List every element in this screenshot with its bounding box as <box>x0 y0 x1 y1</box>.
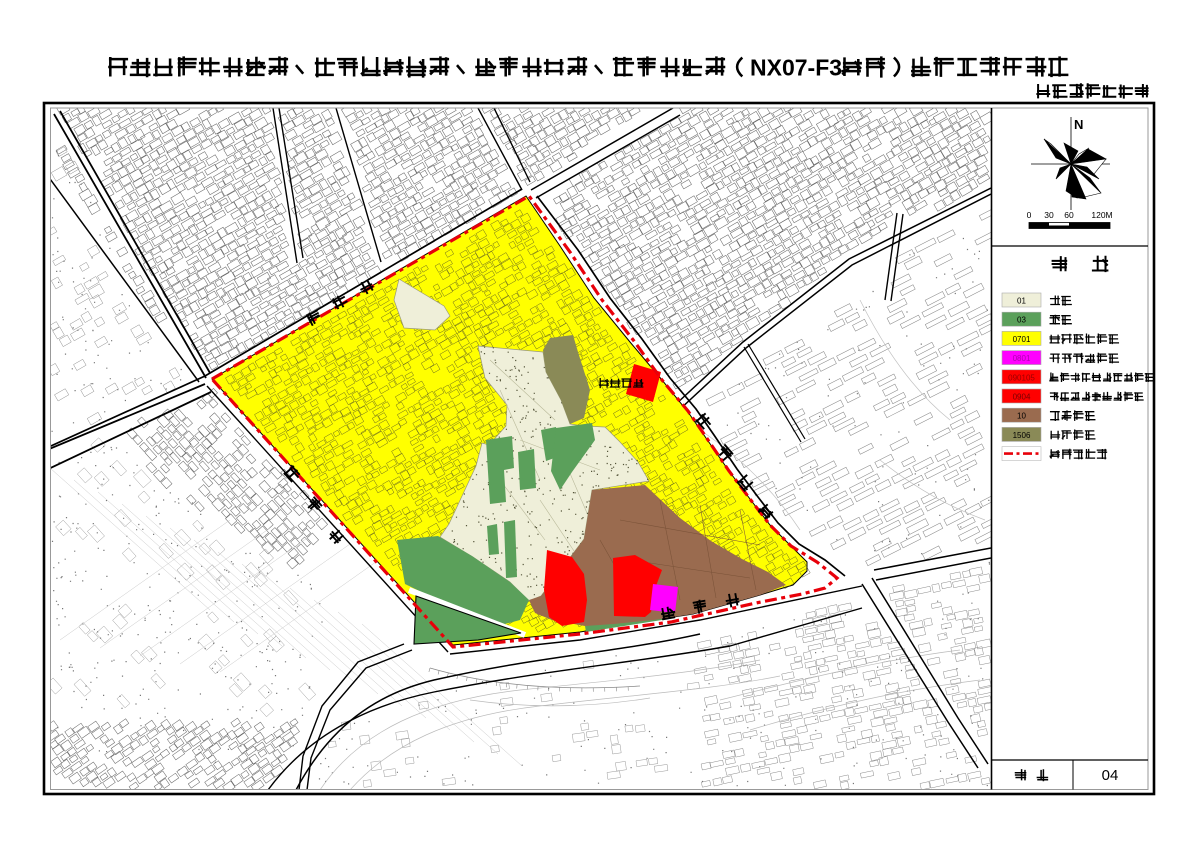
svg-text:60: 60 <box>1064 210 1074 220</box>
svg-text:0904: 0904 <box>1013 393 1031 402</box>
svg-text:0: 0 <box>1027 210 1032 220</box>
svg-text:01: 01 <box>1017 297 1026 306</box>
svg-text:0701: 0701 <box>1013 335 1031 344</box>
svg-text:NX07-F3: NX07-F3 <box>750 54 842 80</box>
svg-text:1506: 1506 <box>1013 431 1031 440</box>
svg-text:N: N <box>1074 117 1083 132</box>
svg-text:0801: 0801 <box>1013 354 1031 363</box>
svg-text:30: 30 <box>1044 210 1054 220</box>
svg-text:120M: 120M <box>1091 210 1112 220</box>
svg-text:03: 03 <box>1017 316 1026 325</box>
svg-text:04: 04 <box>1102 767 1119 784</box>
svg-text:10: 10 <box>1017 412 1026 421</box>
svg-text:090105: 090105 <box>1008 373 1035 382</box>
